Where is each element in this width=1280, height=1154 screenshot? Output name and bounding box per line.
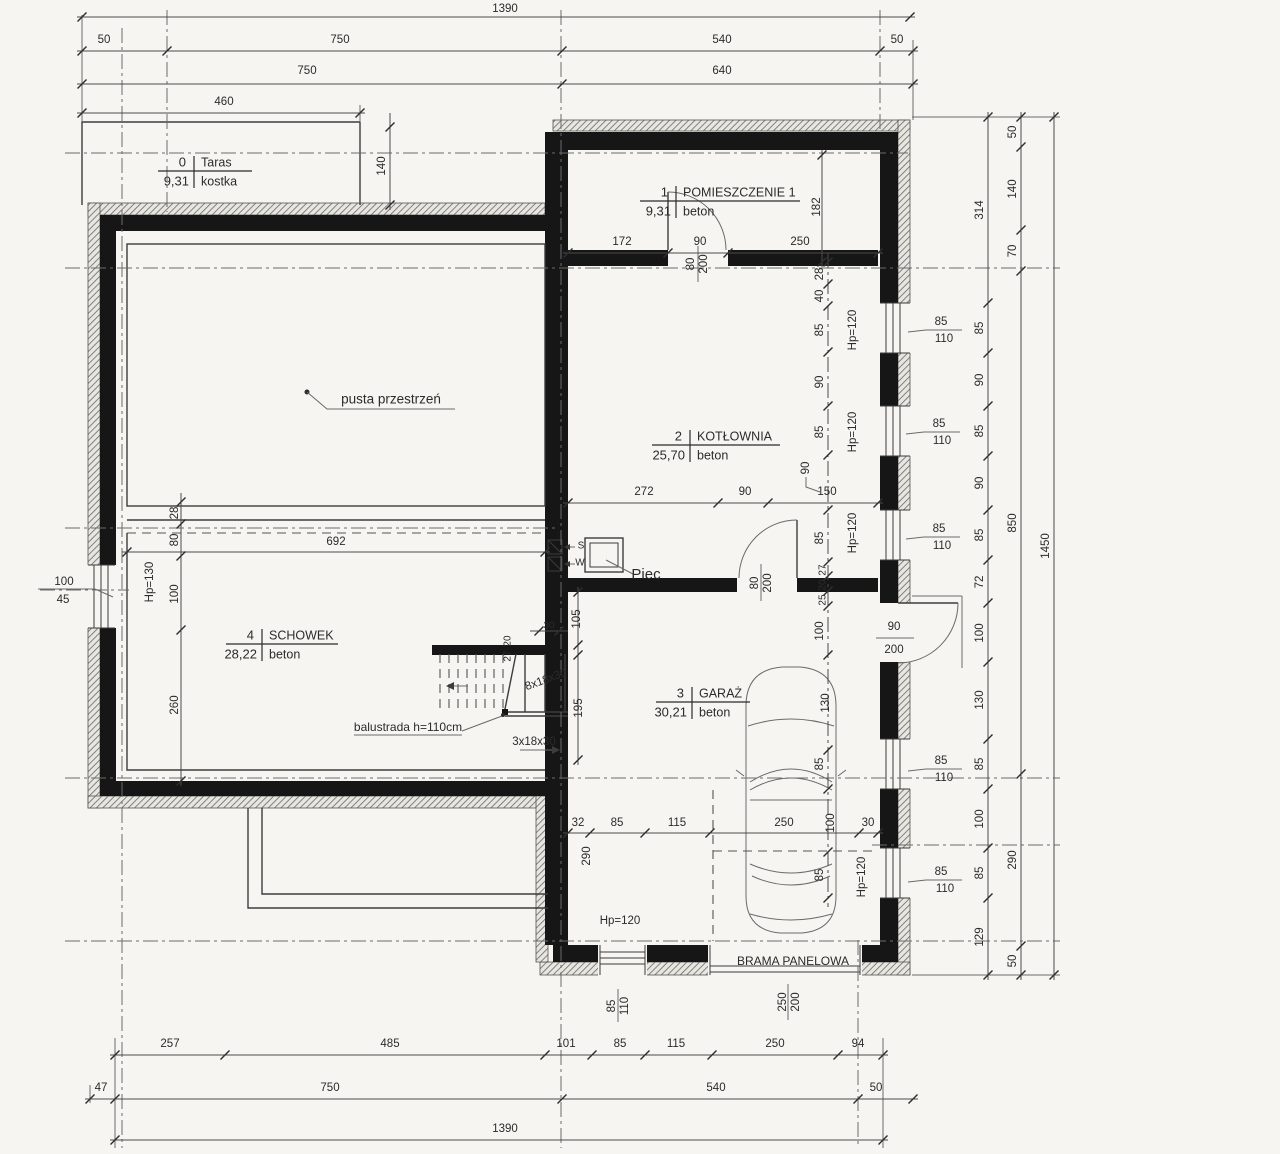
dim-label: 130 (820, 693, 832, 712)
dim-label: 80 (169, 534, 181, 547)
dim-label: 460 (214, 96, 233, 108)
dim-label: 90 (974, 374, 986, 387)
dim-label: 20 (503, 635, 514, 647)
dim-label: 85 (974, 529, 986, 542)
dim-label: 750 (320, 1082, 339, 1094)
dim-label: 540 (712, 34, 731, 46)
dim-label: 250 (765, 1038, 784, 1050)
room-area: 28,22 (224, 646, 257, 661)
dim-label: 257 (160, 1038, 179, 1050)
dim-label: 250 (774, 817, 793, 829)
dim-label: 100 (974, 809, 986, 828)
dim-label: 85 (814, 869, 826, 882)
dim-label: 290 (1007, 850, 1019, 869)
room-name: Taras (201, 155, 232, 169)
dim-label: 1390 (492, 1123, 518, 1135)
dim-label: 90 (888, 621, 901, 633)
dim-label: 250 (790, 236, 809, 248)
dim-label: Hp=120 (847, 310, 859, 351)
room-material: kostka (201, 174, 237, 188)
dim-label: 30 (543, 621, 555, 632)
dim-label: 100 (169, 584, 181, 603)
room-name: POMIESZCZENIE 1 (683, 185, 796, 199)
dim-label: 750 (297, 65, 316, 77)
dim-label: 40 (814, 290, 826, 303)
dim-label: 140 (376, 156, 388, 175)
dim-label: 290 (581, 846, 593, 865)
dim-label: Hp=120 (600, 915, 641, 927)
dim-label: Hp=130 (144, 562, 156, 603)
room-area: 9,31 (646, 203, 671, 218)
dim-label: 110 (933, 540, 951, 552)
room-material: beton (699, 705, 730, 719)
dim-label: W (575, 558, 585, 569)
dim-label: 90 (800, 462, 812, 475)
dim-label: 28 (169, 507, 181, 520)
room-label: 4SCHOWEK28,22beton (224, 627, 338, 661)
dim-label: 30 (862, 817, 875, 829)
dim-label: 172 (612, 236, 631, 248)
dim-label: 50 (1007, 126, 1019, 139)
room-label: 3GARAŻ30,21beton (654, 685, 750, 719)
dim-label: 50 (870, 1082, 883, 1094)
dim-label: 692 (326, 536, 345, 548)
dim-label: 1390 (492, 3, 518, 15)
dim-label: 485 (380, 1038, 399, 1050)
windows-layer (86, 303, 912, 977)
dim-label: 110 (933, 435, 951, 447)
dim-label: 85 (933, 523, 946, 535)
dim-label: 540 (706, 1082, 725, 1094)
room-number: 4 (247, 627, 254, 642)
dim-label: 200 (698, 254, 710, 273)
dim-label: 70 (1007, 245, 1019, 258)
dim-label: 72 (974, 576, 986, 589)
dim-label: 27 (503, 650, 514, 662)
room-number: 1 (661, 184, 668, 199)
dim-label: 129 (974, 927, 986, 946)
room-number: 2 (675, 428, 682, 443)
dim-label: 140 (1007, 179, 1019, 198)
dim-tick (824, 451, 833, 460)
dim-label: 85 (974, 758, 986, 771)
dim-label: 200 (884, 644, 903, 656)
room-number: 3 (677, 685, 684, 700)
dim-label: 28 (814, 268, 826, 281)
dim-label: 27 (818, 564, 829, 576)
dim-label: pusta przestrzeń (341, 392, 441, 407)
room-name: GARAŻ (699, 686, 742, 700)
dim-label: 25 (818, 594, 829, 606)
room-material: beton (269, 647, 300, 661)
dim-label: 45 (57, 594, 70, 606)
dim-label: 250 (777, 992, 789, 1011)
dim-label: 105 (571, 609, 583, 628)
dim-label: 182 (811, 197, 823, 216)
dim-label: BRAMA PANELOWA (737, 954, 849, 968)
dim-label: 85 (611, 817, 624, 829)
dim-label: 90 (739, 486, 752, 498)
dim-label: 90 (814, 376, 826, 389)
dim-label: 195 (573, 698, 585, 717)
dim-label: 115 (668, 817, 686, 829)
dim-label: 130 (974, 690, 986, 709)
dim-label: 100 (54, 576, 73, 588)
dim-label: 110 (936, 883, 954, 895)
dim-label: 1450 (1040, 533, 1052, 559)
dim-label: 85 (614, 1038, 627, 1050)
dim-label: 3x18x30 (512, 736, 555, 748)
dim-label: balustrada h=110cm (354, 720, 462, 734)
dim-label: 50 (891, 34, 904, 46)
dim-label: 200 (762, 573, 774, 592)
dim-label: 90 (694, 236, 707, 248)
dim-label: 80 (685, 258, 697, 271)
dim-label: 85 (814, 532, 826, 545)
floor-plan-page: 1390507505405075064046014031485908590857… (0, 0, 1280, 1154)
dim-label: S (578, 541, 585, 552)
dim-label: 50 (1007, 955, 1019, 968)
dim-label: Hp=120 (847, 412, 859, 453)
dim-label: 80 (749, 577, 761, 590)
room-area: 9,31 (164, 173, 189, 188)
walls-layer (100, 132, 898, 962)
dim-label: 150 (817, 486, 836, 498)
dim-label: 85 (814, 758, 826, 771)
dim-tick (824, 348, 833, 357)
room-number: 0 (179, 154, 186, 169)
room-material: beton (683, 204, 714, 218)
dim-label: 85 (974, 867, 986, 880)
room-material: beton (697, 448, 728, 462)
dim-label: 85 (974, 322, 986, 335)
dim-label: 85 (974, 425, 986, 438)
dim-label: Piec (631, 566, 661, 583)
dim-label: 50 (98, 34, 111, 46)
dim-label: 200 (790, 992, 802, 1011)
room-label: 1POMIESZCZENIE 19,31beton (640, 184, 800, 218)
dim-label: 47 (95, 1082, 108, 1094)
dim-label: 272 (634, 486, 653, 498)
insulation-hatch-layer (88, 120, 910, 975)
dim-label: 94 (852, 1038, 865, 1050)
dim-label: 110 (935, 333, 953, 345)
dim-label: 32 (572, 817, 585, 829)
floor-plan-drawing: 1390507505405075064046014031485908590857… (0, 0, 1280, 1154)
room-area: 25,70 (652, 447, 685, 462)
dim-label: Hp=120 (856, 857, 868, 898)
dim-label: 100 (974, 623, 986, 642)
dim-label: 100 (814, 621, 826, 640)
dim-label: 850 (1007, 513, 1019, 532)
room-label: 0Taras9,31kostka (158, 154, 252, 188)
dim-label: 20 (818, 579, 829, 591)
dim-label: Hp=120 (847, 513, 859, 554)
dim-label: 100 (825, 813, 837, 832)
dim-tick (824, 894, 833, 903)
dim-label: 750 (330, 34, 349, 46)
dim-label: 85 (606, 1000, 618, 1013)
dim-label: 90 (974, 477, 986, 490)
room-name: SCHOWEK (269, 628, 334, 642)
dim-label: 85 (935, 316, 948, 328)
dim-label: 85 (814, 324, 826, 337)
room-name: KOTŁOWNIA (697, 429, 773, 443)
room-area: 30,21 (654, 704, 687, 719)
dim-label: 85 (935, 866, 948, 878)
dim-label: 85 (933, 418, 946, 430)
dim-label: 115 (667, 1038, 685, 1050)
dim-label: 314 (974, 200, 986, 220)
car-symbol (713, 667, 877, 941)
dim-label: 110 (619, 997, 631, 1015)
dim-label: 85 (935, 755, 948, 767)
dim-label: 110 (935, 772, 953, 784)
dim-label: 85 (814, 426, 826, 439)
dim-label: 260 (169, 695, 181, 714)
dim-label: 101 (556, 1038, 575, 1050)
room-label: 2KOTŁOWNIA25,70beton (652, 428, 780, 462)
dim-label: 640 (712, 65, 731, 77)
